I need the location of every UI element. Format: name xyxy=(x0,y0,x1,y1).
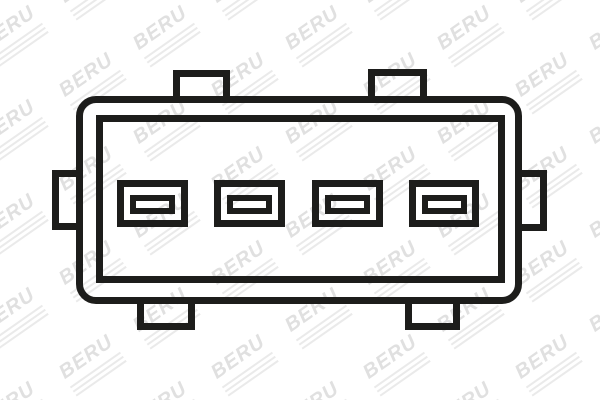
connector-technical-drawing: BERUBERUBERUBERUBERUBERUBERUBERUBERUBERU… xyxy=(0,0,600,400)
tab-bottom-right xyxy=(405,297,460,330)
drawing-layer xyxy=(0,0,600,400)
pin-slot-4-terminal xyxy=(422,195,467,214)
tab-bottom-left xyxy=(137,297,195,330)
pin-slot-3 xyxy=(312,180,383,227)
tab-top-right xyxy=(368,69,427,103)
pin-slot-1-terminal xyxy=(130,195,175,214)
pin-slot-2-terminal xyxy=(227,195,272,214)
tab-side-left xyxy=(52,170,83,230)
pin-slot-3-terminal xyxy=(325,195,370,214)
pin-slot-1 xyxy=(117,180,188,227)
tab-side-right xyxy=(515,170,547,231)
pin-slot-2 xyxy=(214,180,285,227)
pin-slot-4 xyxy=(409,180,479,227)
tab-top-left xyxy=(173,70,230,103)
